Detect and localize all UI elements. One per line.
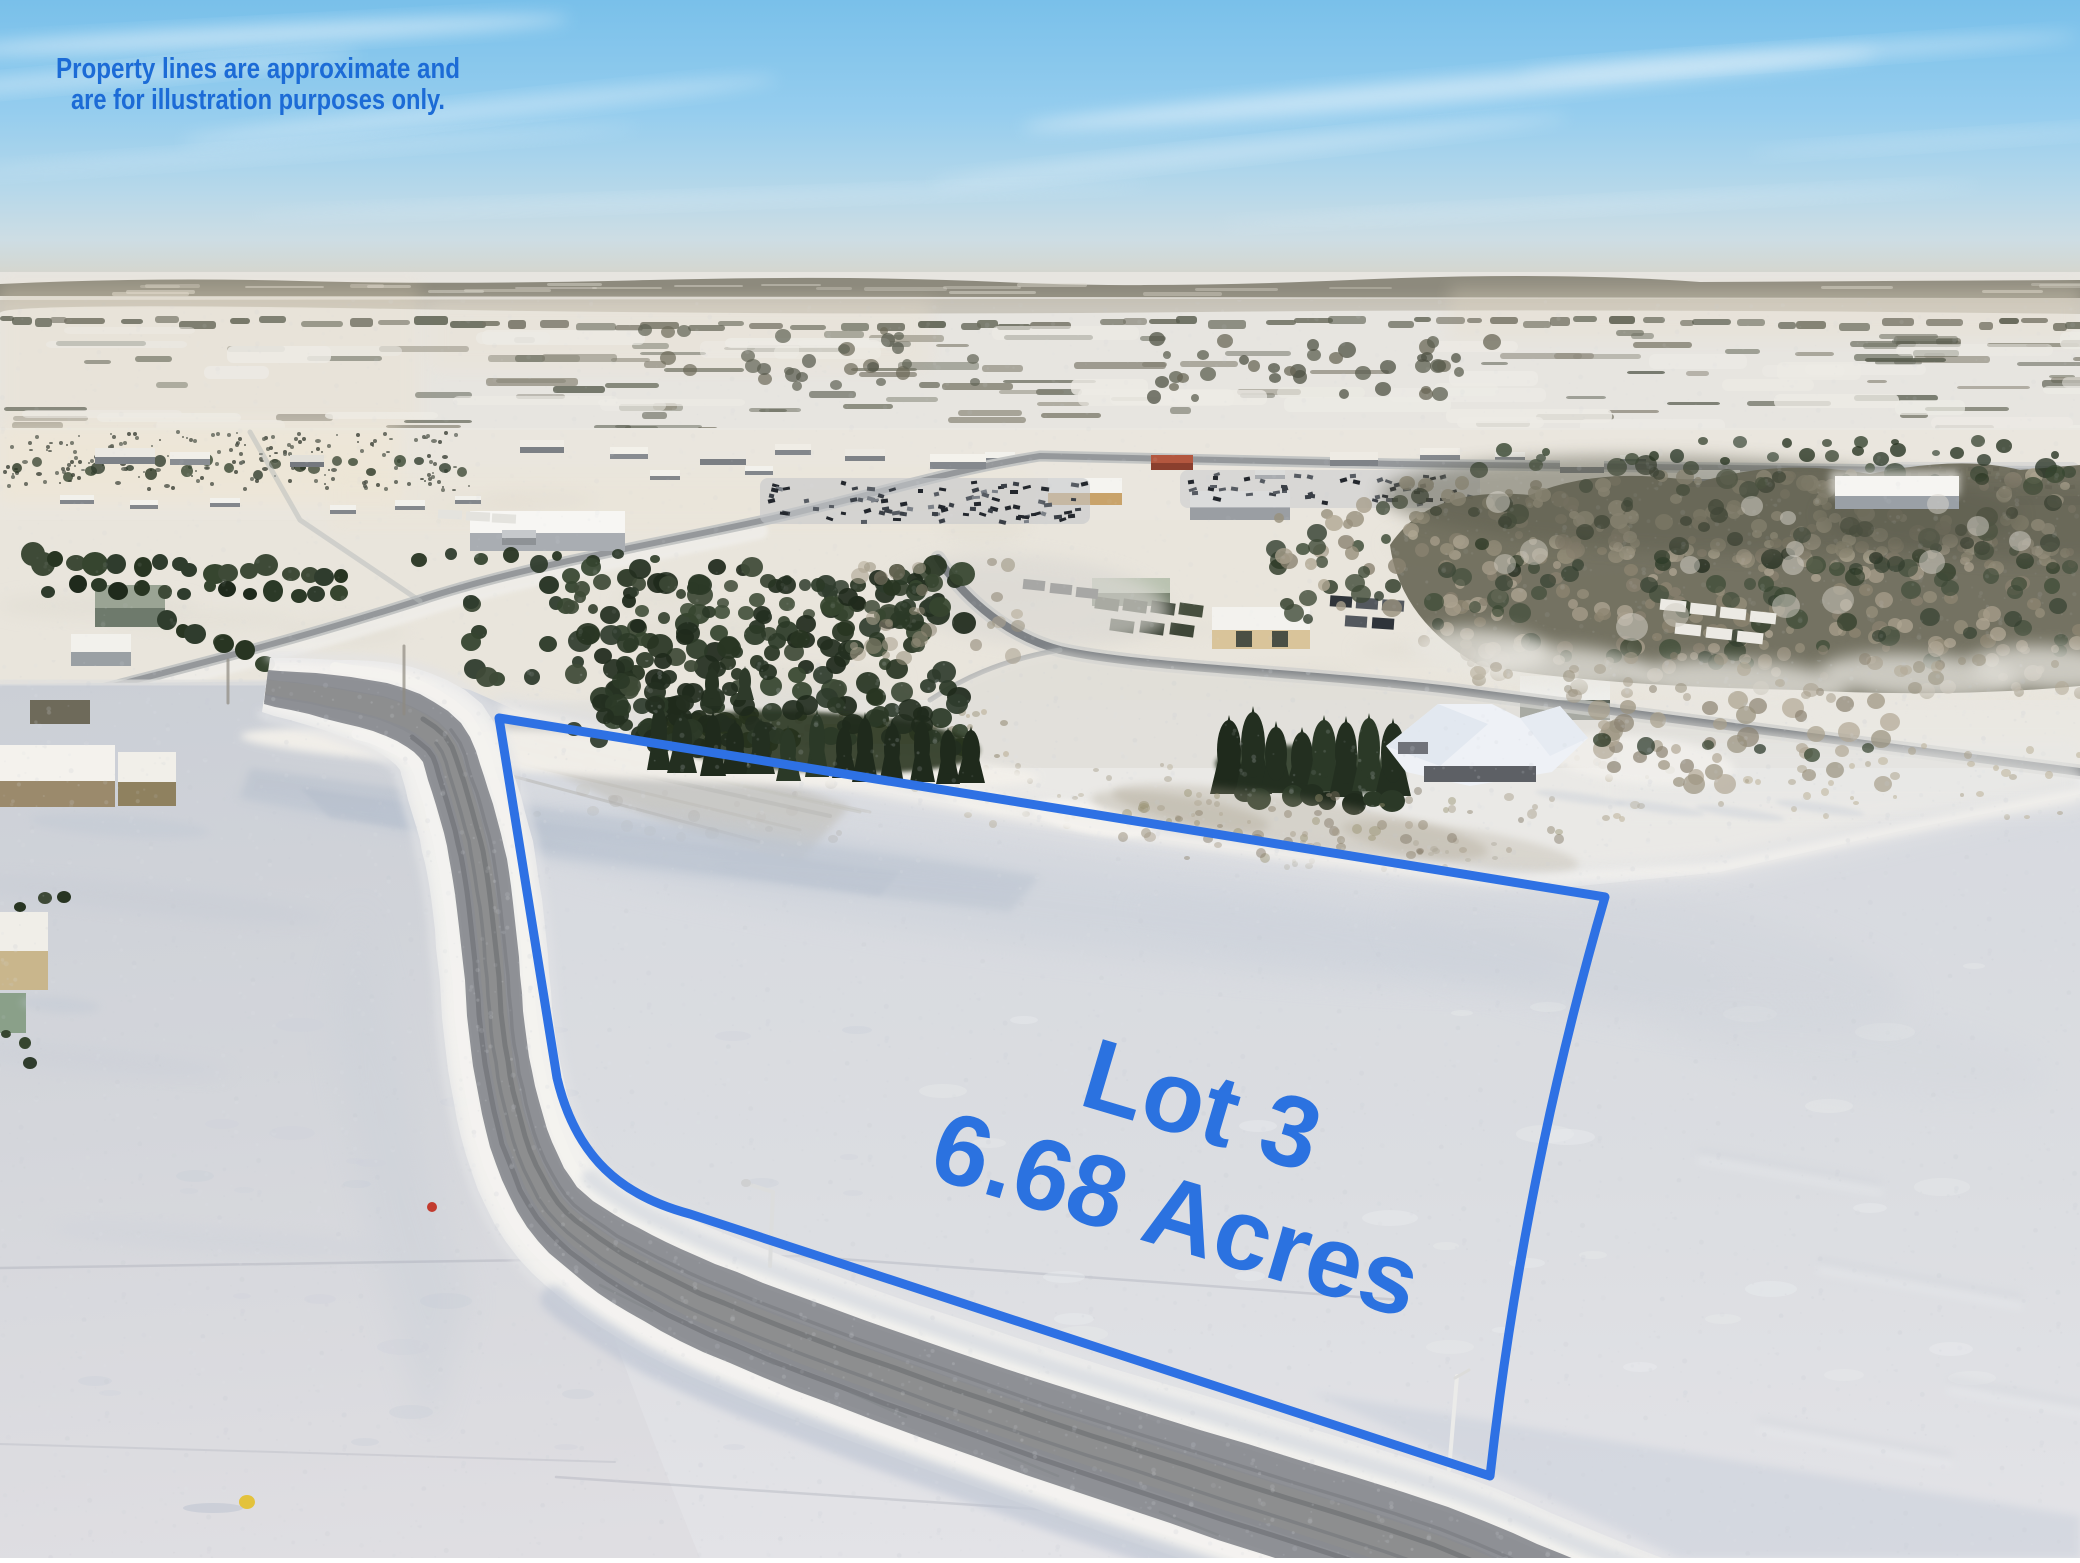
svg-text:are for illustration purposes: are for illustration purposes only.: [71, 84, 445, 116]
svg-text:Property lines are approximate: Property lines are approximate and: [56, 53, 460, 85]
